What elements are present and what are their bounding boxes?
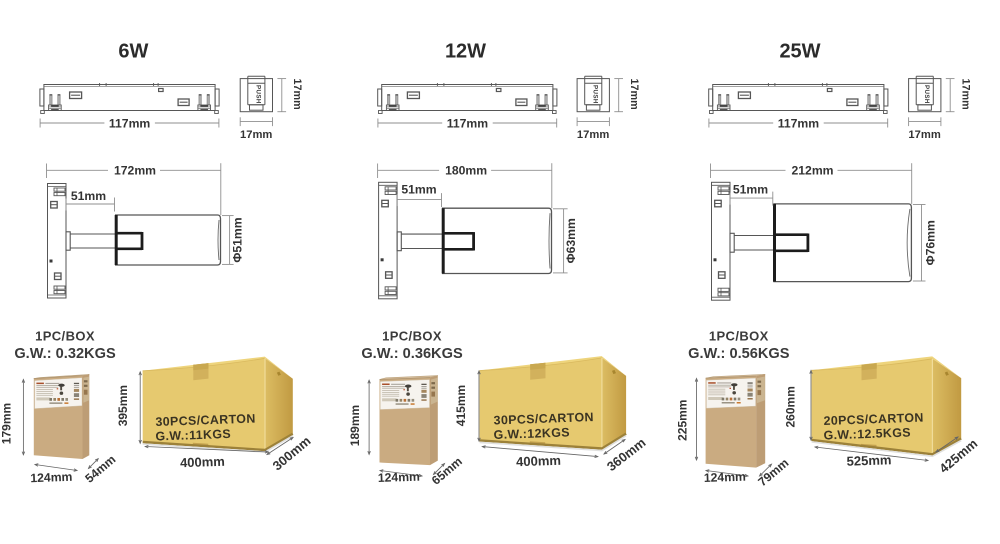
svg-text:G.W.:11KGS: G.W.:11KGS xyxy=(155,427,231,444)
svg-text:117mm: 117mm xyxy=(778,116,819,130)
svg-text:124mm: 124mm xyxy=(378,470,421,485)
svg-text:6W: 6W xyxy=(118,41,148,63)
svg-text:17mm: 17mm xyxy=(960,78,972,109)
svg-text:51mm: 51mm xyxy=(733,183,768,197)
svg-text:Φ51mm: Φ51mm xyxy=(231,217,245,262)
svg-text:189mm: 189mm xyxy=(348,405,362,446)
svg-text:51mm: 51mm xyxy=(71,189,106,203)
svg-text:51mm: 51mm xyxy=(401,183,436,197)
svg-text:212mm: 212mm xyxy=(791,163,833,177)
svg-text:G.W.: 0.32KGS: G.W.: 0.32KGS xyxy=(14,346,116,362)
svg-text:117mm: 117mm xyxy=(109,116,150,130)
svg-text:17mm: 17mm xyxy=(628,78,640,109)
svg-text:179mm: 179mm xyxy=(0,403,14,444)
svg-text:PUSH: PUSH xyxy=(254,85,261,104)
svg-text:124mm: 124mm xyxy=(30,470,73,485)
svg-text:260mm: 260mm xyxy=(783,386,797,427)
svg-text:124mm: 124mm xyxy=(704,470,747,485)
svg-text:PUSH: PUSH xyxy=(591,85,598,104)
svg-text:400mm: 400mm xyxy=(516,453,561,470)
svg-text:G.W.: 0.36KGS: G.W.: 0.36KGS xyxy=(361,346,463,362)
svg-text:17mm: 17mm xyxy=(291,78,303,109)
svg-text:Φ76mm: Φ76mm xyxy=(924,220,938,265)
svg-text:180mm: 180mm xyxy=(445,163,487,177)
svg-text:17mm: 17mm xyxy=(908,129,940,141)
svg-text:G.W.: 0.56KGS: G.W.: 0.56KGS xyxy=(688,346,790,362)
svg-text:12W: 12W xyxy=(445,41,486,63)
svg-text:400mm: 400mm xyxy=(180,454,225,471)
svg-text:25W: 25W xyxy=(779,41,820,63)
svg-text:17mm: 17mm xyxy=(240,129,272,141)
svg-text:172mm: 172mm xyxy=(114,163,156,177)
svg-text:G.W.:12KGS: G.W.:12KGS xyxy=(493,425,570,442)
svg-text:1PC/BOX: 1PC/BOX xyxy=(709,328,769,343)
svg-text:525mm: 525mm xyxy=(846,452,891,469)
svg-text:117mm: 117mm xyxy=(447,116,488,130)
svg-text:415mm: 415mm xyxy=(454,385,468,426)
svg-text:17mm: 17mm xyxy=(577,129,609,141)
svg-text:Φ63mm: Φ63mm xyxy=(564,218,578,263)
svg-text:225mm: 225mm xyxy=(676,400,690,441)
svg-text:PUSH: PUSH xyxy=(923,85,930,104)
svg-text:1PC/BOX: 1PC/BOX xyxy=(35,328,95,343)
svg-text:395mm: 395mm xyxy=(116,385,130,426)
svg-text:1PC/BOX: 1PC/BOX xyxy=(382,328,442,343)
